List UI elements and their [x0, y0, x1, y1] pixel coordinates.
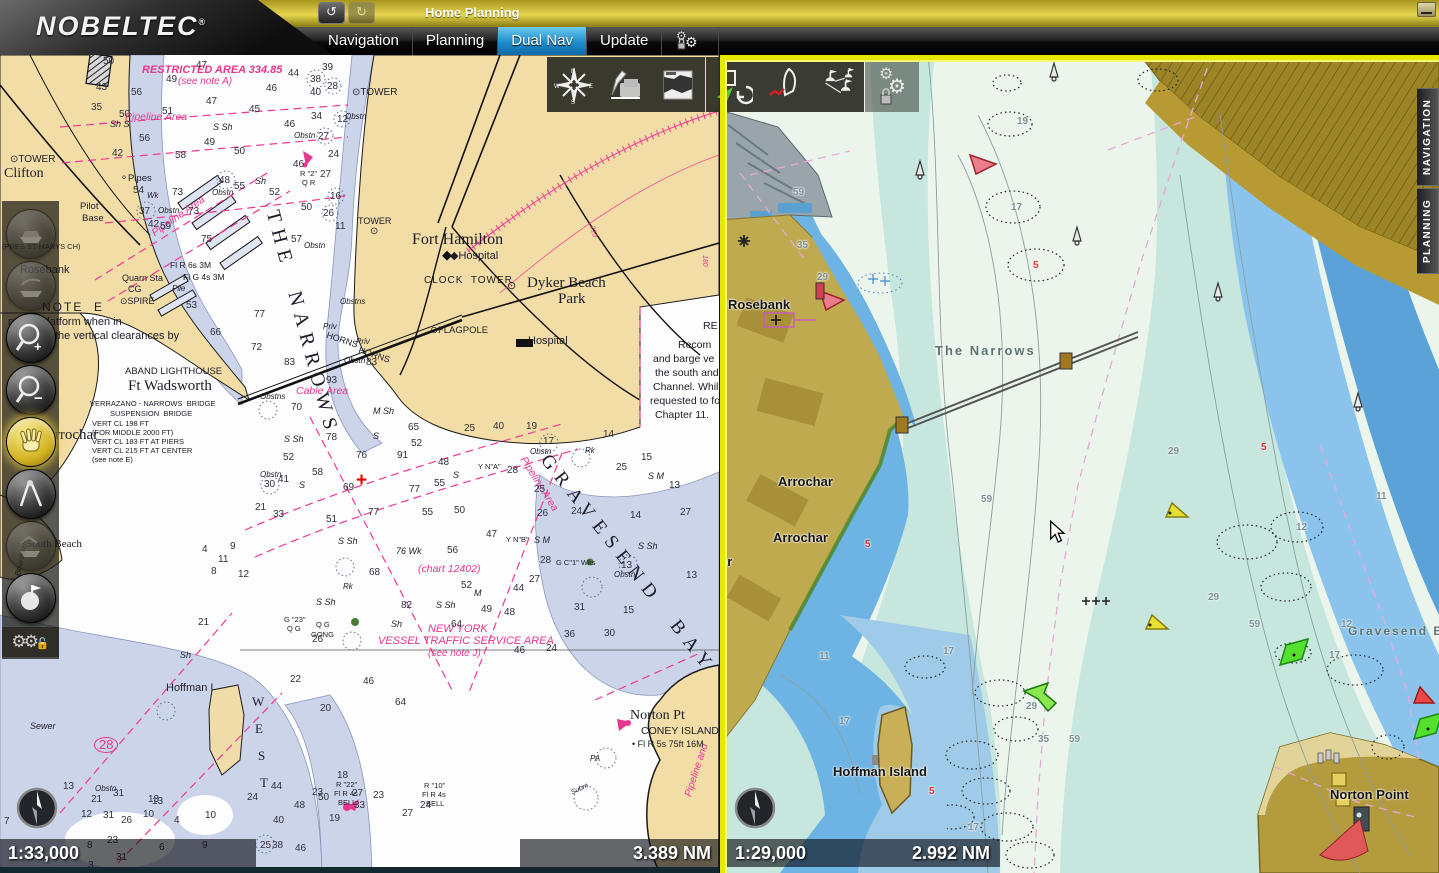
map-label: Sh S	[110, 120, 130, 129]
map-label: Obstn	[212, 189, 233, 197]
map-label: ⊙TOWER	[10, 155, 55, 166]
north-compass-badge[interactable]	[734, 787, 776, 829]
map-label: 44	[513, 584, 524, 595]
map-label: CLOCK TOWER	[424, 276, 513, 287]
map-label: 29	[1208, 593, 1219, 604]
map-label: 55	[434, 479, 445, 490]
map-label: 42	[148, 220, 159, 231]
map-label: Hoffman I	[166, 683, 214, 695]
map-label: 17	[543, 437, 554, 448]
map-label: Arrochar	[773, 531, 828, 545]
map-label: Pipeline and	[684, 743, 711, 799]
logo-reg: ®	[199, 17, 208, 27]
map-label: 9	[230, 542, 236, 553]
nobeltec-app: NOBELTEC® ↺ ↻ Home Planning Navigation P…	[0, 0, 1439, 873]
map-label: 39	[322, 63, 333, 74]
map-label: Pipeline Area	[125, 112, 187, 123]
map-label: 59	[1069, 735, 1080, 746]
chart-panel-raster[interactable]: RESTRICTED AREA 334.85(see note A)Pipeli…	[0, 55, 719, 873]
map-label: Obstn	[304, 242, 325, 250]
compass-rose-icon[interactable]: NSWE	[553, 63, 595, 107]
map-label: 19	[1017, 117, 1028, 128]
map-label: 17	[943, 647, 954, 658]
map-label: VERT CL 183 FT AT PIERS	[92, 438, 184, 446]
map-label: Pile	[172, 285, 185, 293]
map-label: 82	[401, 601, 412, 612]
map-label: ◆Hospital	[450, 251, 498, 263]
map-label: 47	[206, 97, 217, 108]
vessel-track-icon	[16, 271, 46, 301]
map-label: Fl R 6s 3M	[170, 261, 211, 270]
map-label: 11	[1376, 492, 1387, 503]
map-label: 46	[266, 84, 277, 95]
map-label: G C"1" Wks	[556, 559, 596, 567]
map-label: 17	[839, 717, 850, 728]
map-label: 27	[402, 809, 413, 820]
map-label: S	[258, 749, 265, 763]
map-label: 21	[198, 618, 209, 629]
map-label: Obstn	[530, 448, 551, 456]
map-label: 49	[204, 138, 215, 149]
map-label: 48	[294, 801, 305, 812]
map-label: 31	[574, 603, 585, 614]
map-label: Recom	[678, 340, 711, 351]
side-tab-planning[interactable]: PLANNING	[1417, 188, 1439, 274]
map-label: 4	[174, 816, 180, 827]
map-label: 77	[368, 508, 379, 519]
map-label: 56	[139, 134, 150, 145]
map-label: 78	[326, 433, 337, 444]
map-label: 13	[686, 571, 697, 582]
map-label: 12	[337, 115, 348, 126]
map-label: S	[373, 432, 379, 441]
map-label: S	[453, 471, 459, 480]
map-label: 21	[91, 795, 102, 806]
map-label: R "2"	[300, 170, 317, 178]
map-label: 17	[1011, 203, 1022, 214]
map-label: Park	[558, 292, 586, 308]
map-label: 25	[260, 841, 271, 852]
map-label: 28	[507, 466, 518, 477]
map-label: Channel. Whil	[653, 382, 718, 393]
map-label: 70	[291, 403, 302, 414]
map-label: 47	[196, 61, 207, 72]
map-label: ⊙SPIRE	[120, 297, 155, 306]
map-label: 12	[1341, 620, 1352, 631]
map-label: 27	[352, 789, 363, 800]
minimize-button[interactable]	[1417, 2, 1436, 17]
side-tab-navigation[interactable]: NAVIGATION	[1417, 88, 1439, 186]
map-label: 29	[817, 273, 828, 284]
vessel-tool-button[interactable]	[6, 209, 56, 259]
dividers-tool-button[interactable]	[6, 469, 56, 519]
map-label: 55	[234, 182, 245, 193]
chart-toolbar: NSWE	[547, 57, 919, 112]
map-label: 24	[247, 793, 258, 804]
map-label: 50	[234, 147, 245, 158]
map-label: G "23"	[284, 616, 306, 624]
window-title: Home Planning	[425, 5, 520, 20]
map-label: 37	[139, 207, 150, 218]
map-label: Obstn	[344, 357, 365, 365]
map-label: 19	[329, 814, 340, 825]
map-label: Norton Point	[1330, 788, 1409, 802]
map-label: CONEY ISLAND	[641, 726, 719, 737]
map-label: 8	[211, 567, 217, 578]
vessel-route-icon	[16, 531, 46, 561]
map-label: 59	[160, 222, 171, 233]
map-label: 23	[373, 791, 384, 802]
toolbar-group-settings: ⚙⚙	[865, 57, 919, 112]
map-label: Obstn	[345, 113, 366, 121]
map-label: 22	[290, 675, 301, 686]
map-label: 48	[504, 608, 515, 619]
map-label: RE	[703, 321, 718, 332]
map-label: S Sh	[284, 435, 304, 444]
chart-thumbnail-icon[interactable]	[657, 63, 699, 107]
logo-text: NOBELTEC	[36, 11, 199, 41]
map-label: Norton Pt	[630, 709, 685, 724]
map-label: VERT CL 215 FT AT CENTER	[92, 447, 192, 455]
map-label: SUSPENSION BRIDGE	[110, 410, 192, 418]
map-label: 52	[269, 188, 280, 199]
sidebar-gears-lock-icon[interactable]: ⚙⚙🔓	[2, 627, 59, 657]
mouse-cursor	[1048, 520, 1066, 544]
map-label: 56	[447, 546, 458, 557]
map-label: S	[299, 481, 305, 490]
map-label: 40	[273, 816, 284, 827]
map-label: 50	[103, 57, 114, 68]
svg-text:S: S	[571, 100, 575, 105]
map-label: Obstns	[260, 393, 285, 401]
map-label: 33	[354, 801, 365, 812]
map-label: RESTRICTED AREA 334.85	[142, 65, 282, 77]
dividers-icon	[15, 478, 47, 510]
svg-text:−: −	[34, 390, 43, 407]
map-label: 30	[264, 480, 275, 491]
map-label: Rk	[585, 447, 595, 455]
map-label: 64	[395, 698, 406, 709]
map-label: the vertical clearances by	[55, 331, 179, 343]
zoom-out-tool-button[interactable]: −	[6, 365, 56, 415]
map-label: 50	[119, 110, 130, 121]
chart-center-cross: +	[356, 470, 367, 492]
map-label: 52	[461, 581, 472, 592]
map-label: Chapter 11.	[655, 410, 709, 421]
map-label: Base	[82, 214, 104, 224]
map-label: 5	[1261, 443, 1267, 454]
route-boat-icon[interactable]	[764, 63, 806, 107]
tab-dual-nav[interactable]: Dual Nav	[498, 27, 587, 55]
map-label: 13	[669, 481, 680, 492]
bearing-tool-button[interactable]	[6, 573, 56, 623]
map-label: ⊙TOWER	[352, 88, 397, 99]
map-label: Obstns	[340, 298, 365, 306]
toolbar-group-edit	[706, 57, 864, 112]
map-label: S Sh	[213, 123, 233, 132]
distance-readout-left: 3.389 NM	[520, 839, 719, 867]
map-label: 48	[219, 176, 230, 187]
map-label: 31	[103, 811, 114, 822]
map-label: 73	[172, 188, 183, 199]
map-label: Sewer	[30, 722, 56, 731]
map-label: 43	[96, 83, 107, 94]
map-label: Rk	[343, 583, 353, 591]
map-label: 59	[793, 188, 804, 199]
map-label: 20	[320, 704, 331, 715]
map-label: Sh	[180, 651, 191, 660]
tab-planning[interactable]: Planning	[413, 27, 498, 55]
map-label: 41	[278, 475, 289, 486]
map-label: HORNS	[325, 331, 359, 350]
map-label: 46	[293, 160, 304, 171]
map-label: 83	[284, 358, 295, 369]
map-label: 36	[564, 630, 575, 641]
map-label: 24	[546, 644, 557, 655]
map-label: Sh	[391, 620, 402, 629]
map-label: 38	[272, 841, 283, 852]
map-label: 13	[63, 782, 74, 793]
map-label: 93	[326, 376, 337, 387]
map-label: 77	[409, 485, 420, 496]
map-label: ⊙	[370, 227, 378, 238]
map-label: 10	[143, 810, 154, 821]
map-label: M Sh	[373, 407, 394, 416]
map-label: 59	[981, 495, 992, 506]
north-compass-badge[interactable]	[16, 787, 58, 829]
map-label: 11	[218, 555, 228, 566]
map-label: 24	[571, 507, 582, 518]
map-label: 17	[968, 823, 979, 834]
map-label: 51	[326, 515, 337, 526]
map-label: 14	[630, 511, 641, 522]
settings-gears-lock-icon[interactable]: ⚙⚙	[662, 27, 719, 55]
map-label: 24	[420, 801, 431, 812]
svg-text:+: +	[34, 339, 42, 354]
map-label: 16	[330, 192, 341, 203]
map-label: ⊙	[507, 281, 516, 293]
map-label: (see note E)	[92, 456, 133, 464]
map-label: Pilot	[80, 202, 98, 212]
map-label: 57	[291, 235, 302, 246]
map-label: T	[260, 776, 268, 790]
map-label: 38	[310, 75, 321, 86]
map-label: The Narrows	[935, 344, 1036, 358]
map-label: ar	[720, 555, 732, 569]
map-label: 27	[680, 508, 691, 519]
map-label: 91	[397, 451, 408, 462]
map-label: 12	[1296, 523, 1307, 534]
undo-button[interactable]: ↺	[318, 2, 345, 24]
map-label: 55	[422, 508, 433, 519]
zoom-in-icon: +	[14, 321, 48, 355]
map-label: 12	[81, 810, 92, 821]
map-label: 52	[283, 453, 294, 464]
map-label: 76 Wk	[396, 547, 422, 556]
map-label: 13	[152, 797, 163, 808]
map-label: Obstn	[158, 207, 179, 215]
map-label: 29	[1168, 447, 1179, 458]
map-label: 10	[205, 811, 216, 822]
map-label: 27	[320, 170, 331, 181]
map-label: Ft Wadsworth	[128, 379, 212, 395]
map-label: ⊙FLAGPOLE	[430, 326, 488, 336]
map-label: 54	[133, 186, 144, 197]
map-label: 26	[537, 509, 548, 520]
map-label: (chart 12402)	[418, 564, 480, 575]
chart-panel-vector[interactable]: RosebankThe NarrowsArrocharArrochararGra…	[720, 55, 1439, 873]
zoom-out-icon: −	[14, 373, 48, 407]
svg-text:W: W	[554, 84, 560, 90]
map-label: 46	[284, 120, 295, 131]
map-label: CG	[128, 285, 142, 294]
map-label: R "10"	[424, 782, 445, 790]
map-label: 29	[1026, 702, 1037, 713]
map-label: Y N"A"	[478, 463, 501, 471]
map-label: requested to fo	[650, 396, 719, 407]
map-label: 12	[238, 570, 249, 581]
map-label: 5	[929, 787, 935, 798]
map-label: 68	[369, 568, 380, 579]
map-label: 26	[312, 635, 323, 646]
map-label: Hospital	[528, 336, 568, 348]
map-label: 11	[819, 652, 830, 663]
map-label: Quarn Sta	[122, 274, 163, 283]
gears-lock-icon[interactable]: ⚙⚙	[871, 63, 913, 107]
map-label: 58	[175, 151, 186, 162]
map-label: Q R	[302, 179, 315, 187]
map-label: Wk	[147, 192, 159, 200]
map-label: 25	[534, 485, 545, 496]
svg-text:N: N	[571, 69, 575, 75]
svg-text:⚙: ⚙	[685, 34, 698, 50]
map-label: 31	[113, 789, 124, 800]
map-label: Rosebank	[728, 298, 790, 312]
map-label: 44	[288, 69, 299, 80]
map-label: 28	[327, 82, 338, 93]
map-label: 15	[623, 606, 634, 617]
map-label: 46	[295, 844, 306, 855]
map-label: 5	[865, 540, 871, 551]
map-label: 66	[210, 328, 221, 339]
left-panel-bottom-strip	[0, 867, 719, 873]
map-label: 35	[797, 241, 808, 252]
map-label: 76	[356, 451, 367, 462]
map-label: Gravesend Ba	[1348, 625, 1439, 638]
map-label: 25	[616, 463, 627, 474]
map-label: VESSEL TRAFFIC SERVICE AREA	[378, 636, 554, 648]
map-label: 4	[202, 545, 208, 556]
waypoints-flags-icon[interactable]	[816, 63, 858, 107]
map-label: 44	[271, 782, 282, 793]
map-label: 26	[323, 209, 334, 220]
select-refresh-icon[interactable]	[712, 63, 754, 107]
map-label: 27	[318, 132, 329, 143]
map-label: S Sh	[338, 537, 358, 546]
map-label: 69	[343, 483, 354, 494]
map-label: 50	[318, 793, 329, 804]
map-label: Q G	[287, 625, 301, 633]
pan-hand-icon	[15, 426, 47, 458]
map-label: 58	[312, 468, 323, 479]
vessel-route-tool-button[interactable]	[6, 521, 56, 571]
map-label: Sh	[255, 177, 266, 186]
map-label: 65	[408, 423, 419, 434]
map-label: 83	[366, 358, 377, 369]
map-label: 50	[301, 203, 312, 214]
tab-update[interactable]: Update	[587, 27, 662, 55]
map-label: 28	[94, 737, 118, 753]
redo-button[interactable]: ↻	[348, 2, 375, 24]
annotate-pencil-icon[interactable]	[605, 63, 647, 107]
map-label: Arrochar	[778, 475, 833, 489]
map-label: 180	[701, 255, 708, 267]
map-label: 46	[363, 677, 374, 688]
map-label: (see note J)	[428, 649, 481, 660]
map-label: E	[255, 722, 263, 736]
map-label: Subm	[570, 782, 590, 796]
map-label: S Sh	[436, 601, 456, 610]
chart-tools-sidebar: + − ⚙⚙🔓	[2, 201, 59, 659]
map-label: VERT CL 198 FT	[92, 420, 149, 428]
map-label: W	[252, 695, 264, 709]
map-label: 40	[310, 88, 321, 99]
map-label: 33	[273, 510, 284, 521]
map-label: Obstn	[614, 571, 635, 579]
map-label: (FOR MIDDLE 2000 FT)	[92, 429, 173, 437]
map-label: M	[474, 589, 482, 598]
map-label: 14	[603, 430, 614, 441]
map-label: 26	[121, 816, 132, 827]
scale-readout-left: 1:33,000	[0, 839, 256, 867]
map-label: 53	[186, 301, 197, 312]
svg-text:E: E	[589, 84, 593, 90]
map-label: 50	[454, 506, 465, 517]
map-label: 77	[254, 310, 265, 321]
zoom-in-tool-button[interactable]: +	[6, 313, 56, 363]
raster-chart-labels: RESTRICTED AREA 334.85(see note A)Pipeli…	[0, 55, 719, 873]
toolbar-group-view: NSWE	[547, 57, 705, 112]
map-label: 27	[529, 575, 540, 586]
map-label: Dyker Beach	[527, 276, 606, 292]
map-label: 47	[486, 530, 497, 541]
pan-tool-button[interactable]	[6, 417, 56, 467]
map-label: 30	[604, 629, 615, 640]
map-label: 56	[131, 88, 142, 99]
vessel-track-tool-button[interactable]	[6, 261, 56, 311]
map-label: 49	[166, 75, 177, 86]
map-label: 72	[251, 343, 262, 354]
map-label: 7	[4, 817, 10, 828]
map-label: • Fl R 5s 75ft 16M	[632, 740, 704, 749]
map-label: Fl R 4s	[422, 791, 446, 799]
map-label: 35	[91, 103, 102, 114]
tab-navigation[interactable]: Navigation	[315, 27, 413, 55]
map-label: Clifton	[4, 167, 44, 182]
map-label: 13	[621, 561, 632, 572]
map-label: Obstn	[294, 132, 315, 140]
map-label: ABAND LIGHTHOUSE	[125, 367, 222, 377]
map-label: S M	[648, 472, 664, 481]
map-label: 24	[328, 150, 339, 161]
map-label: 28	[540, 556, 551, 567]
map-label: 19	[526, 422, 537, 433]
map-label: (see note A)	[178, 77, 232, 88]
map-label: 210	[588, 225, 598, 238]
map-label: Fl G 4s 3M	[183, 273, 225, 282]
map-label: 42	[112, 149, 123, 160]
gears-lock-icon: ⚙⚙	[675, 27, 701, 53]
